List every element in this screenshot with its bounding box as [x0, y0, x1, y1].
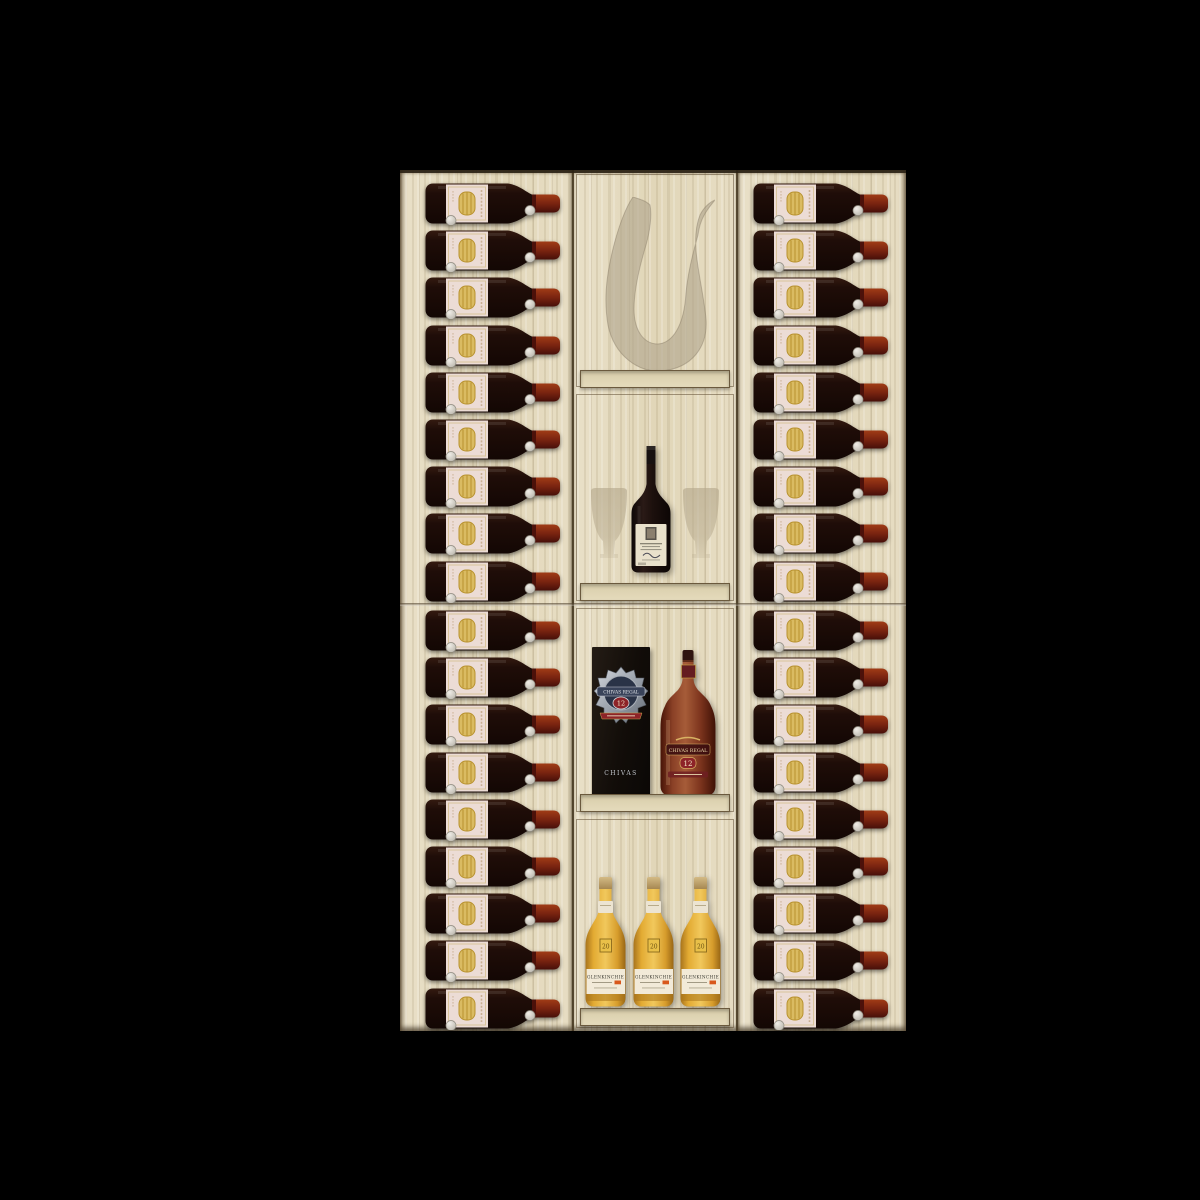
- neck-foil: [536, 572, 560, 590]
- rack-peg: [446, 926, 456, 936]
- rack-peg: [446, 310, 456, 320]
- label-barrel-emblem: [459, 428, 475, 451]
- rack-peg: [446, 879, 456, 889]
- horizontal-wine-bottle: [424, 751, 560, 794]
- rack-peg: [446, 643, 456, 653]
- wine-rack-slot: [752, 465, 888, 508]
- rack-peg: [853, 727, 863, 737]
- neck-foil: [536, 195, 560, 213]
- wine-rack-slot: [424, 892, 560, 935]
- rack-peg: [853, 489, 863, 499]
- horizontal-wine-bottle: [424, 371, 560, 414]
- neck-foil: [536, 763, 560, 781]
- wine-display-niche: [572, 390, 738, 604]
- horizontal-wine-bottle: [424, 798, 560, 841]
- label-barrel-emblem: [787, 428, 803, 451]
- rack-peg: [525, 442, 535, 452]
- rack-peg: [774, 643, 784, 653]
- rack-peg: [853, 916, 863, 926]
- label-barrel-emblem: [459, 855, 475, 878]
- wine-rack-slot: [424, 939, 560, 982]
- wine-rack-slot: [752, 939, 888, 982]
- horizontal-wine-bottle: [424, 656, 560, 699]
- label-barrel-emblem: [787, 619, 803, 642]
- rack-peg: [853, 633, 863, 643]
- wine-rack-slot: [752, 418, 888, 461]
- neck-foil: [864, 525, 888, 543]
- bottle-cap: [647, 877, 660, 890]
- rack-peg: [853, 253, 863, 263]
- label-barrel-emblem: [459, 286, 475, 309]
- neck-foil: [536, 242, 560, 260]
- rack-peg: [525, 774, 535, 784]
- rack-peg: [525, 727, 535, 737]
- decanter-niche: [572, 170, 738, 390]
- neck-foil: [536, 431, 560, 449]
- rack-peg: [774, 973, 784, 983]
- rack-peg: [853, 774, 863, 784]
- rack-peg: [853, 347, 863, 357]
- horizontal-wine-bottle: [752, 703, 888, 746]
- neck-foil: [864, 716, 888, 734]
- rack-peg: [774, 1020, 784, 1030]
- horizontal-wine-bottle: [752, 798, 888, 841]
- rack-peg: [446, 831, 456, 841]
- bottle-cap: [599, 877, 612, 890]
- label-barrel-emblem: [459, 902, 475, 925]
- box-age-text: 12: [617, 699, 625, 707]
- badge-age-text: 20: [602, 944, 610, 951]
- rack-peg: [446, 263, 456, 273]
- label-barrel-emblem: [459, 570, 475, 593]
- box-brand-text: CHIVAS REGAL: [603, 691, 639, 696]
- label-barrel-emblem: [459, 713, 475, 736]
- wine-glass-silhouette-icon: [676, 488, 726, 568]
- neck-foil: [536, 525, 560, 543]
- neck-label: [682, 665, 696, 678]
- rack-peg: [853, 394, 863, 404]
- label-barrel-emblem: [787, 997, 803, 1020]
- label-barrel-emblem: [787, 713, 803, 736]
- label-barrel-emblem: [459, 949, 475, 972]
- neck-foil: [864, 289, 888, 307]
- wine-rack-slot: [752, 892, 888, 935]
- rack-peg: [774, 831, 784, 841]
- wine-rack-slot: [752, 371, 888, 414]
- shoulder-badge: 20: [600, 939, 612, 952]
- label-barrel-emblem: [459, 192, 475, 215]
- neck-foil: [864, 572, 888, 590]
- horizontal-wine-bottle: [424, 324, 560, 367]
- label-barrel-emblem: [787, 855, 803, 878]
- rack-peg: [525, 633, 535, 643]
- neck-foil: [536, 810, 560, 828]
- horizontal-wine-bottle: [424, 560, 560, 603]
- neck-foil: [864, 336, 888, 354]
- neck-foil: [536, 669, 560, 687]
- chivas-crest-icon: CHIVAS REGAL 12: [594, 665, 648, 733]
- horizontal-wine-bottle: [424, 182, 560, 225]
- badge-age-text: 20: [650, 944, 658, 951]
- wine-rack-slot: [424, 324, 560, 367]
- wine-rack-slot: [752, 229, 888, 272]
- wine-rack-slot: [424, 609, 560, 652]
- rack-peg: [774, 546, 784, 556]
- wine-rack-slot: [424, 656, 560, 699]
- wine-rack-slot: [752, 656, 888, 699]
- neck-label: [693, 901, 708, 913]
- neck-foil: [864, 858, 888, 876]
- rack-peg: [525, 821, 535, 831]
- rack-peg: [446, 357, 456, 367]
- malt-brand-text: GLENKINCHIE: [682, 976, 719, 981]
- wine-rack-slot: [424, 229, 560, 272]
- horizontal-wine-bottle: [752, 845, 888, 888]
- rack-peg: [525, 963, 535, 973]
- scene-background: CHIVAS REGAL 12 CHIVAS: [0, 0, 1200, 1200]
- horizontal-wine-bottle: [424, 987, 560, 1030]
- glenkinchie-bottle: 20 GLENKINCHIE: [632, 877, 675, 1008]
- horizontal-wine-bottle: [752, 656, 888, 699]
- rack-peg: [525, 583, 535, 593]
- label-barrel-emblem: [459, 239, 475, 262]
- wine-rack-slot: [752, 324, 888, 367]
- neck-foil: [536, 478, 560, 496]
- wine-rack-slot: [424, 703, 560, 746]
- glenkinchie-bottle: 20 GLENKINCHIE: [679, 877, 722, 1008]
- horizontal-wine-bottle: [752, 371, 888, 414]
- horizontal-wine-bottle: [424, 892, 560, 935]
- neck-foil: [864, 810, 888, 828]
- horizontal-wine-bottle: [424, 418, 560, 461]
- rack-peg: [774, 879, 784, 889]
- wine-rack-slot: [752, 609, 888, 652]
- rack-peg: [774, 499, 784, 509]
- wine-rack-slot: [424, 276, 560, 319]
- rack-peg: [525, 394, 535, 404]
- wine-rack-slot: [424, 560, 560, 603]
- rack-peg: [446, 690, 456, 700]
- label-barrel-emblem: [787, 949, 803, 972]
- rack-peg: [774, 593, 784, 603]
- shelf-ledge: [580, 370, 730, 388]
- shoulder-badge: 20: [695, 939, 707, 952]
- chivas-regal-gift-box: CHIVAS REGAL 12 CHIVAS: [592, 647, 650, 795]
- horizontal-wine-bottle: [752, 229, 888, 272]
- rack-peg: [525, 536, 535, 546]
- label-barrel-emblem: [459, 475, 475, 498]
- rack-peg: [853, 442, 863, 452]
- label-barrel-emblem: [459, 381, 475, 404]
- rack-peg: [774, 263, 784, 273]
- rack-peg: [853, 963, 863, 973]
- rack-peg: [774, 452, 784, 462]
- neck-label: [598, 901, 613, 913]
- wine-rack-slot: [752, 182, 888, 225]
- rack-peg: [525, 869, 535, 879]
- horizontal-wine-bottle: [752, 276, 888, 319]
- bottle-front-label: GLENKINCHIE: [587, 969, 626, 994]
- wine-rack-slot: [424, 182, 560, 225]
- wine-front-label: [636, 524, 667, 566]
- rack-peg: [774, 784, 784, 794]
- rack-peg: [774, 216, 784, 226]
- neck-foil: [536, 858, 560, 876]
- rack-peg: [853, 583, 863, 593]
- rack-peg: [774, 737, 784, 747]
- rack-peg: [525, 300, 535, 310]
- label-barrel-emblem: [787, 902, 803, 925]
- label-barrel-emblem: [459, 808, 475, 831]
- shelf-ledge: [580, 794, 730, 812]
- wine-rack-slot: [424, 987, 560, 1030]
- rack-peg: [853, 206, 863, 216]
- horizontal-wine-bottle: [752, 418, 888, 461]
- right-wine-rack-column: [738, 170, 906, 1031]
- bottle-brand-text: CHIVAS REGAL: [669, 748, 709, 754]
- rack-peg: [774, 310, 784, 320]
- rack-peg: [853, 1010, 863, 1020]
- shelf-ledge: [580, 583, 730, 601]
- shelf-ledge: [580, 1008, 730, 1026]
- horizontal-wine-bottle: [424, 845, 560, 888]
- rack-peg: [446, 973, 456, 983]
- rack-peg: [525, 1010, 535, 1020]
- rack-peg: [525, 489, 535, 499]
- horizontal-wine-bottle: [752, 939, 888, 982]
- horizontal-wine-bottle: [424, 276, 560, 319]
- horizontal-wine-bottle: [424, 703, 560, 746]
- neck-foil: [864, 242, 888, 260]
- bottle-age-text: 12: [684, 760, 693, 768]
- rack-peg: [853, 536, 863, 546]
- rack-peg: [446, 1020, 456, 1030]
- neck-foil: [536, 336, 560, 354]
- bottle-front-label: GLENKINCHIE: [635, 969, 674, 994]
- rack-peg: [525, 347, 535, 357]
- horizontal-wine-bottle: [752, 324, 888, 367]
- wine-glass-silhouette-icon: [584, 488, 634, 568]
- wine-rack-slot: [752, 512, 888, 555]
- neck-foil: [536, 999, 560, 1017]
- neck-foil: [536, 622, 560, 640]
- malt-brand-text: GLENKINCHIE: [635, 976, 672, 981]
- left-wine-rack-column: [400, 170, 572, 1031]
- malt-brand-text: GLENKINCHIE: [587, 976, 624, 981]
- neck-foil: [536, 952, 560, 970]
- rack-peg: [525, 206, 535, 216]
- label-barrel-emblem: [787, 334, 803, 357]
- rack-peg: [774, 357, 784, 367]
- badge-age-text: 20: [697, 944, 705, 951]
- rack-peg: [446, 404, 456, 414]
- rack-peg: [853, 869, 863, 879]
- wine-rack-slot: [752, 751, 888, 794]
- wine-rack-slot: [424, 465, 560, 508]
- rack-peg: [774, 404, 784, 414]
- neck-foil: [864, 383, 888, 401]
- glass-decanter-silhouette-icon: [600, 197, 715, 373]
- center-display-column: CHIVAS REGAL 12 CHIVAS: [572, 170, 738, 1031]
- horizontal-wine-bottle: [424, 512, 560, 555]
- neck-foil: [864, 622, 888, 640]
- label-barrel-emblem: [459, 666, 475, 689]
- standing-wine-bottle: [630, 446, 672, 573]
- rack-peg: [853, 300, 863, 310]
- wine-rack-slot: [752, 276, 888, 319]
- wine-rack-slot: [752, 560, 888, 603]
- wine-rack-slot: [424, 418, 560, 461]
- rack-peg: [446, 499, 456, 509]
- rack-peg: [525, 253, 535, 263]
- horizontal-wine-bottle: [752, 892, 888, 935]
- rack-peg: [446, 452, 456, 462]
- wine-rack-slot: [752, 798, 888, 841]
- wine-rack-slot: [752, 703, 888, 746]
- neck-foil: [864, 195, 888, 213]
- label-barrel-emblem: [459, 761, 475, 784]
- label-barrel-emblem: [787, 522, 803, 545]
- horizontal-wine-bottle: [424, 609, 560, 652]
- neck-foil: [536, 716, 560, 734]
- wine-rack-slot: [424, 371, 560, 414]
- label-barrel-emblem: [459, 619, 475, 642]
- shoulder-badge: 20: [648, 939, 660, 952]
- label-barrel-emblem: [459, 522, 475, 545]
- cabinet-top-edge: [400, 170, 906, 173]
- box-footer-text: CHIVAS: [592, 770, 650, 777]
- label-barrel-emblem: [787, 286, 803, 309]
- horizontal-wine-bottle: [752, 609, 888, 652]
- neck-foil: [864, 478, 888, 496]
- bottle-front-label: GLENKINCHIE: [682, 969, 721, 994]
- horizontal-wine-bottle: [752, 182, 888, 225]
- rack-peg: [525, 680, 535, 690]
- label-barrel-emblem: [787, 666, 803, 689]
- rack-peg: [446, 737, 456, 747]
- neck-label: [646, 901, 661, 913]
- rack-peg: [774, 926, 784, 936]
- wine-rack-slot: [752, 845, 888, 888]
- chivas-regal-bottle: CHIVAS REGAL 12: [658, 650, 718, 797]
- label-barrel-emblem: [787, 239, 803, 262]
- label-barrel-emblem: [787, 570, 803, 593]
- label-barrel-emblem: [787, 381, 803, 404]
- label-barrel-emblem: [459, 997, 475, 1020]
- glenkinchie-bottle: 20 GLENKINCHIE: [584, 877, 627, 1008]
- wine-cabinet: CHIVAS REGAL 12 CHIVAS: [400, 170, 906, 1031]
- wine-rack-slot: [752, 987, 888, 1030]
- rack-peg: [446, 216, 456, 226]
- horizontal-wine-bottle: [752, 751, 888, 794]
- rack-peg: [853, 680, 863, 690]
- rack-peg: [446, 546, 456, 556]
- horizontal-wine-bottle: [752, 465, 888, 508]
- horizontal-wine-bottle: [424, 229, 560, 272]
- rack-peg: [446, 593, 456, 603]
- neck-foil: [536, 383, 560, 401]
- single-malt-niche: 20 GLENKINCHIE: [572, 815, 738, 1031]
- horizontal-wine-bottle: [424, 939, 560, 982]
- wine-rack-slot: [424, 798, 560, 841]
- neck-foil: [864, 669, 888, 687]
- rack-peg: [446, 784, 456, 794]
- cabinet-seam: [400, 603, 906, 606]
- neck-foil: [864, 763, 888, 781]
- label-barrel-emblem: [787, 761, 803, 784]
- wine-rack-slot: [424, 751, 560, 794]
- rack-peg: [774, 690, 784, 700]
- bottle-cap: [694, 877, 707, 890]
- wine-rack-slot: [424, 845, 560, 888]
- label-barrel-emblem: [459, 334, 475, 357]
- rack-peg: [525, 916, 535, 926]
- horizontal-wine-bottle: [752, 512, 888, 555]
- neck-foil: [864, 952, 888, 970]
- neck-foil: [864, 431, 888, 449]
- label-barrel-emblem: [787, 192, 803, 215]
- neck-foil: [864, 905, 888, 923]
- horizontal-wine-bottle: [752, 560, 888, 603]
- wine-rack-slot: [424, 512, 560, 555]
- neck-foil: [536, 289, 560, 307]
- horizontal-wine-bottle: [424, 465, 560, 508]
- rack-peg: [853, 821, 863, 831]
- neck-foil: [536, 905, 560, 923]
- whisky-display-niche: CHIVAS REGAL 12 CHIVAS: [572, 604, 738, 815]
- label-barrel-emblem: [787, 808, 803, 831]
- label-barrel-emblem: [787, 475, 803, 498]
- neck-foil: [864, 999, 888, 1017]
- horizontal-wine-bottle: [752, 987, 888, 1030]
